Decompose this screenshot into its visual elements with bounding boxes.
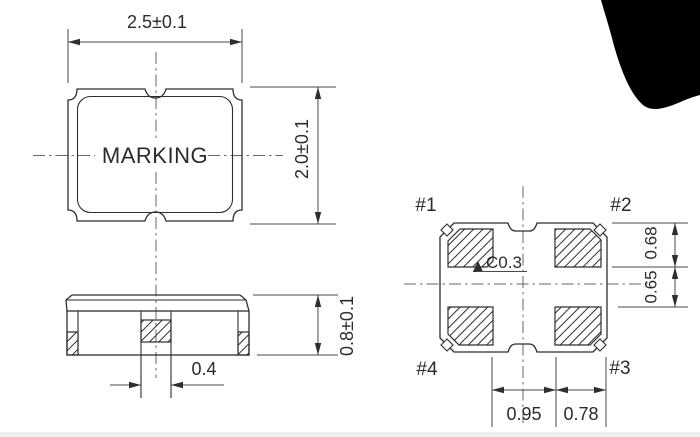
pad4-label: #4 <box>416 359 438 380</box>
left-terminal-hatch <box>67 332 78 355</box>
marking-label: MARKING <box>102 143 208 168</box>
body-width-dimension: 2.5±0.1 <box>127 12 187 32</box>
pad1-label: #1 <box>415 195 436 216</box>
center-pad-width-dimension: 0.4 <box>191 359 216 379</box>
drawing-page: MARKING 2.5±0.1 2.0±0.1 <box>0 0 700 437</box>
pad-2 <box>555 229 601 267</box>
corner-chamfer-dimension: C0.3 <box>486 253 522 272</box>
center-pad-hatch <box>141 320 171 342</box>
body-thickness-dimension: 0.8±0.1 <box>337 296 357 356</box>
pad-width-dimension: 0.78 <box>563 404 598 424</box>
pad-gap-horizontal-dimension: 0.95 <box>506 404 541 424</box>
pad-3 <box>555 307 601 345</box>
pad3-label: #3 <box>609 358 630 379</box>
body-height-dimension: 2.0±0.1 <box>292 119 312 179</box>
pad-4 <box>448 307 493 345</box>
page-bottom-edge <box>0 432 700 437</box>
pad-length-dimension: 0.68 <box>642 226 661 259</box>
package-outline-drawing: MARKING 2.5±0.1 2.0±0.1 <box>0 0 700 437</box>
pad2-label: #2 <box>610 195 631 216</box>
page-background <box>0 0 700 437</box>
right-terminal-hatch <box>238 332 249 355</box>
pad-gap-vertical-dimension: 0.65 <box>642 270 661 303</box>
